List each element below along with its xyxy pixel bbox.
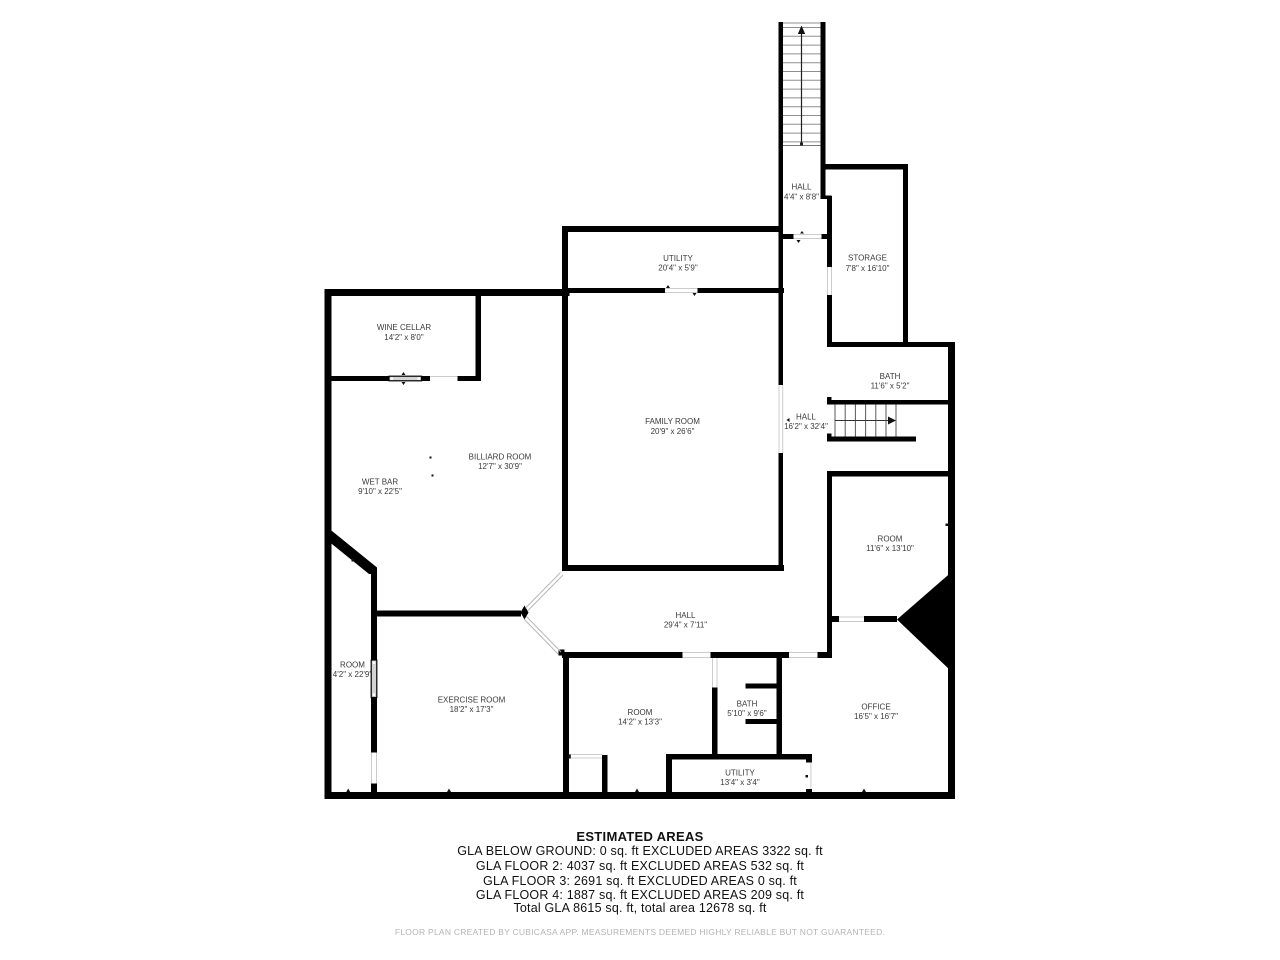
svg-text:GLA FLOOR 3: 2691 sq. ft EXCLU: GLA FLOOR 3: 2691 sq. ft EXCLUDED AREAS … [483, 874, 797, 888]
svg-text:16'2" x 32'4": 16'2" x 32'4" [784, 422, 828, 431]
svg-text:WINE CELLAR: WINE CELLAR [377, 323, 431, 332]
svg-text:BILLIARD ROOM: BILLIARD ROOM [469, 453, 532, 462]
svg-text:FLOOR PLAN CREATED BY CUBICASA: FLOOR PLAN CREATED BY CUBICASA APP. MEAS… [395, 927, 885, 937]
svg-text:UTILITY: UTILITY [663, 254, 693, 263]
svg-text:14'2" x 13'3": 14'2" x 13'3" [618, 718, 662, 727]
svg-text:ROOM: ROOM [878, 535, 903, 544]
svg-text:HALL: HALL [791, 183, 812, 192]
svg-text:4'2" x 22'9": 4'2" x 22'9" [333, 670, 373, 679]
svg-text:HALL: HALL [675, 611, 696, 620]
svg-text:HALL: HALL [796, 413, 817, 422]
svg-text:STORAGE: STORAGE [848, 254, 887, 263]
svg-text:18'2" x 17'3": 18'2" x 17'3" [450, 705, 494, 714]
svg-text:16'5" x 16'7": 16'5" x 16'7" [854, 712, 898, 721]
svg-text:Total GLA 8615 sq. ft, total a: Total GLA 8615 sq. ft, total area 12678 … [513, 901, 766, 915]
svg-text:WET BAR: WET BAR [362, 478, 399, 487]
svg-text:14'2" x 8'0": 14'2" x 8'0" [384, 333, 424, 342]
svg-text:BATH: BATH [880, 372, 901, 381]
svg-text:20'9" x 26'6": 20'9" x 26'6" [651, 427, 695, 436]
svg-text:13'4" x 3'4": 13'4" x 3'4" [720, 778, 760, 787]
svg-text:11'6" x 13'10": 11'6" x 13'10" [866, 544, 914, 553]
svg-text:ROOM: ROOM [628, 708, 653, 717]
svg-text:EXERCISE ROOM: EXERCISE ROOM [438, 696, 506, 705]
svg-text:5'10" x 9'6": 5'10" x 9'6" [727, 709, 767, 718]
svg-text:GLA FLOOR 4: 1887 sq. ft EXCLU: GLA FLOOR 4: 1887 sq. ft EXCLUDED AREAS … [476, 888, 805, 902]
svg-text:12'7" x 30'9": 12'7" x 30'9" [478, 462, 522, 471]
svg-text:OFFICE: OFFICE [861, 703, 890, 712]
svg-text:20'4" x 5'9": 20'4" x 5'9" [658, 264, 698, 273]
svg-text:29'4" x 7'11": 29'4" x 7'11" [664, 621, 707, 630]
svg-text:GLA BELOW GROUND: 0 sq. ft EXC: GLA BELOW GROUND: 0 sq. ft EXCLUDED AREA… [457, 844, 823, 858]
svg-text:BATH: BATH [737, 700, 758, 709]
svg-text:4'4" x 8'8": 4'4" x 8'8" [784, 193, 819, 202]
svg-text:UTILITY: UTILITY [725, 769, 755, 778]
svg-text:7'8" x 16'10": 7'8" x 16'10" [846, 264, 890, 273]
svg-text:ROOM: ROOM [340, 661, 365, 670]
svg-text:9'10" x 22'5": 9'10" x 22'5" [358, 487, 402, 496]
svg-text:GLA FLOOR 2: 4037 sq. ft EXCLU: GLA FLOOR 2: 4037 sq. ft EXCLUDED AREAS … [476, 859, 805, 873]
svg-text:FAMILY ROOM: FAMILY ROOM [645, 417, 700, 426]
svg-text:11'6" x 5'2": 11'6" x 5'2" [871, 382, 910, 391]
svg-text:ESTIMATED AREAS: ESTIMATED AREAS [576, 829, 703, 844]
